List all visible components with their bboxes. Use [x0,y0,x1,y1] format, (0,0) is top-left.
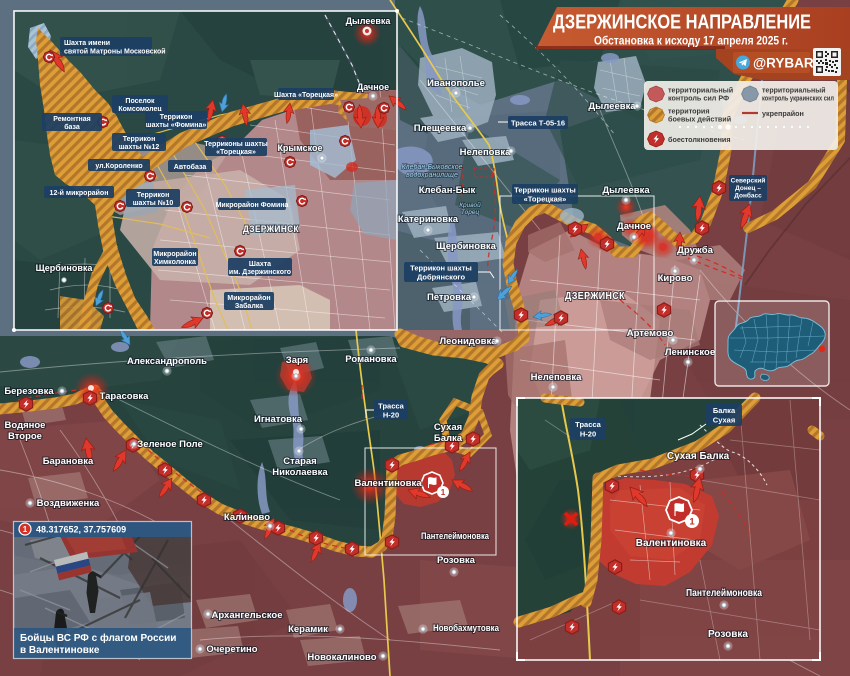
svg-text:Пантелеймоновка: Пантелеймоновка [421,531,490,542]
svg-text:Артемово: Артемово [627,328,674,339]
svg-text:Катериновка: Катериновка [398,214,459,225]
svg-text:Донец –: Донец – [735,185,761,192]
svg-text:Леонидовка: Леонидовка [439,336,497,347]
svg-text:Новобахмутовка: Новобахмутовка [433,623,500,634]
svg-text:Заря: Заря [286,355,308,366]
svg-text:Террикон: Террикон [137,192,170,199]
svg-text:Калиново: Калиново [224,512,270,523]
svg-text:Николаевка: Николаевка [272,467,328,478]
svg-text:ДЗЕРЖИНСКОЕ НАПРАВЛЕНИЕ: ДЗЕРЖИНСКОЕ НАПРАВЛЕНИЕ [553,12,811,34]
svg-text:водохранилище: водохранилище [406,171,458,179]
svg-text:Плещеевка: Плещеевка [414,123,467,134]
svg-text:Дылеевка: Дылеевка [602,185,650,196]
svg-text:Микрорайон Фомина: Микрорайон Фомина [216,201,289,209]
svg-text:Химколонка: Химколонка [154,259,196,266]
svg-text:Розовка: Розовка [708,629,748,640]
svg-text:Бойцы ВС РФ с флагом России: Бойцы ВС РФ с флагом России [20,632,176,644]
svg-text:в Валентиновке: в Валентиновке [20,645,100,656]
svg-text:Иванополье: Иванополье [427,78,485,89]
svg-text:«Торецкая»: «Торецкая» [216,149,256,156]
svg-text:ДЗЕРЖИНСК: ДЗЕРЖИНСК [243,224,299,235]
svg-text:Барановка: Барановка [43,456,94,467]
svg-text:Обстановка к исходу 17 апреля: Обстановка к исходу 17 апреля 2025 г. [594,36,788,48]
svg-text:Ленинское: Ленинское [665,347,715,358]
svg-text:Дылеевка: Дылеевка [346,16,392,26]
svg-text:Сухая: Сухая [713,416,735,425]
svg-text:Террикон: Террикон [123,136,156,143]
svg-text:им. Дзержинского: им. Дзержинского [229,269,291,276]
svg-text:12-й микрорайон: 12-й микрорайон [50,189,109,197]
svg-text:Кривой: Кривой [459,201,481,209]
svg-text:Террикон шахты: Террикон шахты [514,186,576,195]
svg-text:Террикон: Террикон [160,114,193,121]
svg-text:Террикон шахты: Террикон шахты [410,264,472,273]
svg-text:Нелеповка: Нелеповка [460,147,511,158]
svg-text:контроль сил РФ: контроль сил РФ [668,94,729,103]
svg-text:Нелеповка: Нелеповка [531,372,582,383]
svg-text:Сухая: Сухая [434,422,462,433]
svg-text:Дружба: Дружба [677,245,713,256]
svg-text:Игнатовка: Игнатовка [254,414,303,425]
svg-text:Зеленое Поле: Зеленое Поле [137,439,202,450]
svg-text:Валентиновка: Валентиновка [636,538,707,549]
svg-text:Н-20: Н-20 [383,411,399,420]
svg-text:территориальный: территориальный [762,87,826,95]
svg-text:Северский: Северский [731,177,766,185]
svg-text:Березовка: Березовка [4,386,54,397]
svg-text:1: 1 [441,488,446,497]
svg-text:Балка: Балка [434,433,463,444]
svg-text:Щербиновка: Щербиновка [36,263,94,273]
svg-text:Добрянского: Добрянского [417,273,465,282]
svg-text:боевых действий: боевых действий [668,115,731,124]
svg-text:Клебан-Быковское: Клебан-Быковское [402,163,463,171]
svg-text:Поселок: Поселок [125,98,155,105]
svg-text:укрепрайон: укрепрайон [762,109,804,118]
svg-text:база: база [64,123,80,131]
svg-text:Розовка: Розовка [437,555,476,566]
svg-text:Клебан-Бык: Клебан-Бык [419,185,476,196]
svg-text:шахты №12: шахты №12 [119,143,160,151]
svg-text:Тарасовка: Тарасовка [100,391,150,402]
svg-text:Валентиновка: Валентиновка [355,478,423,489]
svg-text:Ремонтная: Ремонтная [53,116,91,123]
svg-text:Керамик: Керамик [288,624,328,635]
svg-text:Шахта «Торецкая»: Шахта «Торецкая» [274,92,338,99]
svg-text:Второе: Второе [8,431,42,442]
svg-text:Крымское: Крымское [277,143,322,153]
svg-text:контроль украинских сил: контроль украинских сил [762,96,834,103]
svg-text:Терриконы шахты: Терриконы шахты [204,141,268,148]
svg-text:48.317652, 37.757609: 48.317652, 37.757609 [36,525,126,535]
svg-text:ул.Короленко: ул.Короленко [95,163,142,170]
svg-text:шахты «Фомина»: шахты «Фомина» [146,122,207,129]
svg-text:Водяное: Водяное [5,420,46,431]
svg-text:Дачное: Дачное [357,82,389,92]
svg-text:Петровка: Петровка [427,292,472,303]
svg-text:Трасса: Трасса [378,402,404,411]
svg-text:святой Матроны Московской: святой Матроны Московской [64,48,166,56]
svg-text:Пантелеймоновка: Пантелеймоновка [686,588,762,599]
svg-text:Н-20: Н-20 [580,430,596,439]
svg-text:Донбасс: Донбасс [734,192,762,200]
svg-text:Трасса Т-05-16: Трасса Т-05-16 [511,119,565,128]
svg-text:Воздвиженка: Воздвиженка [37,498,100,509]
svg-text:1: 1 [23,525,28,534]
svg-text:1: 1 [689,517,695,528]
svg-text:шахты №10: шахты №10 [133,199,174,207]
svg-text:Микрорайон: Микрорайон [153,250,196,258]
svg-text:ДЗЕРЖИНСК: ДЗЕРЖИНСК [565,291,625,302]
svg-text:Микрорайон: Микрорайон [227,294,270,302]
svg-text:Трасса: Трасса [575,420,601,429]
svg-text:боестолкновения: боестолкновения [668,135,731,144]
svg-text:Автобаза: Автобаза [174,163,207,171]
svg-text:Новокалиново: Новокалиново [307,652,376,663]
svg-text:Старая: Старая [283,456,316,467]
svg-text:Шахта имени: Шахта имени [64,40,110,47]
svg-text:Дачное: Дачное [617,221,651,232]
svg-text:@RYBAR: @RYBAR [753,56,814,71]
svg-text:Романовка: Романовка [345,354,397,365]
svg-text:Забалка: Забалка [235,302,263,310]
svg-text:Шахта: Шахта [249,261,271,268]
svg-text:«Торецкая»: «Торецкая» [524,195,567,204]
svg-text:Балка: Балка [713,406,736,415]
svg-text:Щербиновка: Щербиновка [436,241,497,252]
svg-text:Торец: Торец [461,209,480,216]
svg-text:Архангельское: Архангельское [212,610,283,621]
svg-text:Сухая Балка: Сухая Балка [667,451,730,462]
svg-text:Очеретино: Очеретино [206,644,257,655]
svg-text:Александрополь: Александрополь [127,356,207,367]
svg-text:Дылеевка: Дылеевка [588,101,636,112]
